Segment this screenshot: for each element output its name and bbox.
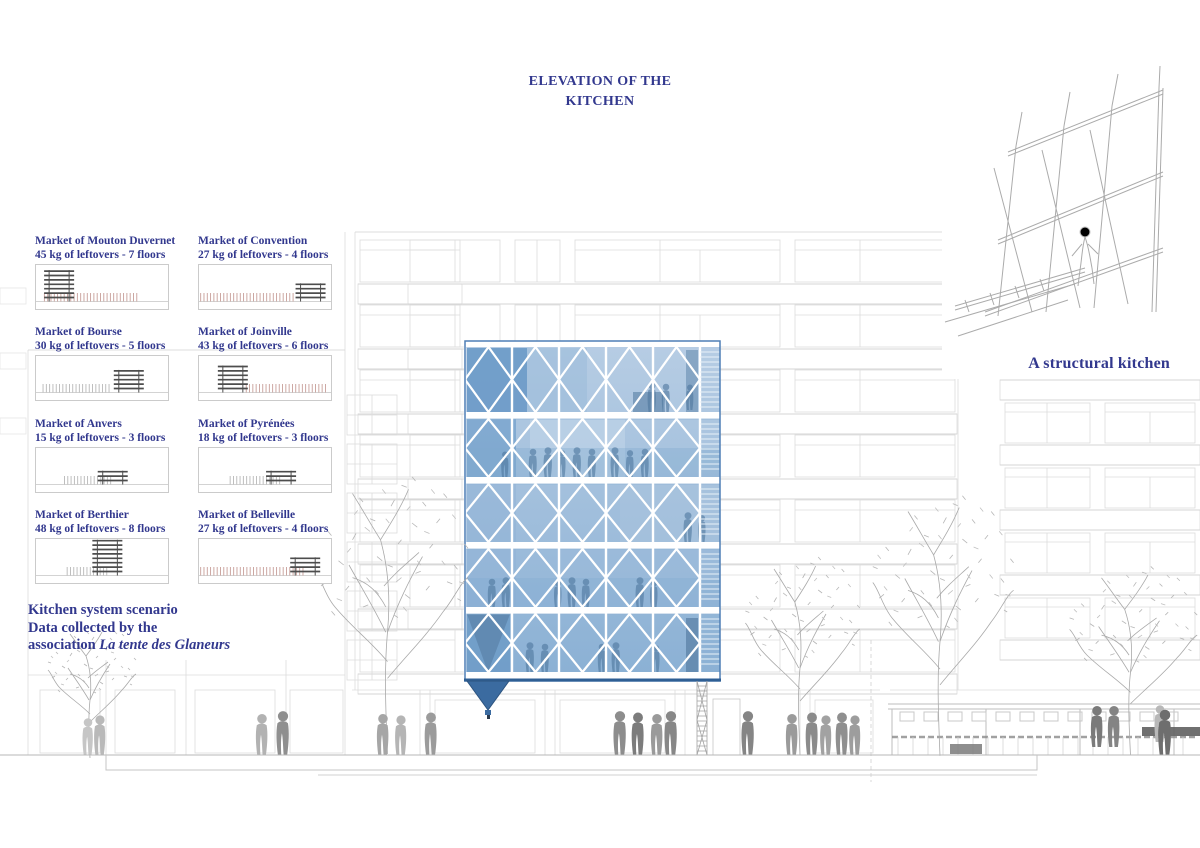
scenario-line2: Data collected by the	[28, 620, 230, 638]
market-stat: 48 kg of leftovers - 8 floors	[35, 523, 175, 537]
market-diagram	[198, 355, 332, 401]
person-icon	[806, 713, 818, 755]
ground-lines	[0, 755, 1200, 775]
scenario-line1: Kitchen system scenario	[28, 602, 230, 620]
person-icon	[1158, 710, 1171, 755]
page-title-line2: KITCHEN	[450, 92, 750, 112]
market-diagram	[198, 538, 332, 584]
person-icon	[786, 714, 798, 755]
person-icon	[276, 711, 288, 755]
market-panel-title: Market of Convention27 kg of leftovers -…	[198, 235, 338, 264]
market-stat: 30 kg of leftovers - 5 floors	[35, 340, 175, 354]
market-panel-title: Market of Anvers15 kg of leftovers - 3 f…	[35, 418, 175, 447]
market-panel: Market of Belleville27 kg of leftovers -…	[198, 509, 338, 584]
person-icon	[741, 711, 753, 755]
person-icon	[836, 713, 848, 755]
market-name: Market of Mouton Duvernet	[35, 235, 175, 249]
market-panel: Market of Anvers15 kg of leftovers - 3 f…	[35, 418, 175, 493]
market-panel: Market of Convention27 kg of leftovers -…	[198, 235, 338, 310]
market-panel-title: Market of Bourse30 kg of leftovers - 5 f…	[35, 326, 175, 355]
market-panel-title: Market of Pyrénées18 kg of leftovers - 3…	[198, 418, 338, 447]
street-people	[83, 705, 1171, 755]
person-icon	[613, 711, 625, 755]
market-name: Market of Bourse	[35, 326, 175, 340]
page-title-line1: ELEVATION OF THE	[450, 72, 750, 92]
market-name: Market of Anvers	[35, 418, 175, 432]
market-panel-title: Market of Joinville43 kg of leftovers - …	[198, 326, 338, 355]
market-name: Market of Convention	[198, 235, 338, 249]
market-diagram	[35, 447, 169, 493]
market-stat: 43 kg of leftovers - 6 floors	[198, 340, 338, 354]
scenario-caption: Kitchen system scenario Data collected b…	[28, 602, 230, 655]
poster-canvas: ELEVATION OF THE KITCHEN A structural ki…	[0, 0, 1200, 848]
market-diagram	[35, 355, 169, 401]
market-stat: 15 kg of leftovers - 3 floors	[35, 432, 175, 446]
market-panel: Market of Joinville43 kg of leftovers - …	[198, 326, 338, 401]
page-title: ELEVATION OF THE KITCHEN	[450, 72, 750, 111]
market-stat: 27 kg of leftovers - 4 floors	[198, 249, 338, 263]
person-icon	[256, 714, 268, 755]
market-panel-title: Market of Belleville27 kg of leftovers -…	[198, 509, 338, 538]
access-ladder	[697, 681, 740, 755]
person-icon	[820, 715, 831, 755]
market-name: Market of Joinville	[198, 326, 338, 340]
person-icon	[849, 715, 860, 755]
elevation-scene	[0, 0, 1200, 848]
market-panel-title: Market of Berthier48 kg of leftovers - 8…	[35, 509, 175, 538]
market-panel: Market of Bourse30 kg of leftovers - 5 f…	[35, 326, 175, 401]
person-icon	[1091, 706, 1103, 747]
market-panel-title: Market of Mouton Duvernet45 kg of leftov…	[35, 235, 175, 264]
person-icon	[395, 715, 406, 755]
market-diagram	[35, 538, 169, 584]
person-icon	[425, 713, 437, 755]
market-diagram	[35, 264, 169, 310]
person-icon	[83, 718, 93, 755]
structural-axonometric-drawing	[942, 58, 1200, 379]
street-pergola	[888, 704, 1200, 755]
person-icon	[1108, 706, 1120, 747]
market-name: Market of Pyrénées	[198, 418, 338, 432]
person-icon	[651, 714, 663, 755]
person-icon	[632, 713, 644, 755]
market-name: Market of Berthier	[35, 509, 175, 523]
market-stat: 45 kg of leftovers - 7 floors	[35, 249, 175, 263]
market-panel: Market of Berthier48 kg of leftovers - 8…	[35, 509, 175, 584]
market-panel: Market of Mouton Duvernet45 kg of leftov…	[35, 235, 175, 310]
market-stat: 18 kg of leftovers - 3 floors	[198, 432, 338, 446]
person-icon	[664, 711, 676, 755]
market-diagram	[198, 264, 332, 310]
market-name: Market of Belleville	[198, 509, 338, 523]
market-stat: 27 kg of leftovers - 4 floors	[198, 523, 338, 537]
kitchen-building-elevation	[464, 341, 740, 755]
structural-kitchen-caption: A structural kitchen	[1000, 355, 1170, 373]
market-diagram	[198, 447, 332, 493]
market-panel: Market of Pyrénées18 kg of leftovers - 3…	[198, 418, 338, 493]
person-icon	[377, 714, 389, 755]
tree-icon	[873, 496, 1014, 756]
scenario-line3: association La tente des Glaneurs	[28, 637, 230, 655]
